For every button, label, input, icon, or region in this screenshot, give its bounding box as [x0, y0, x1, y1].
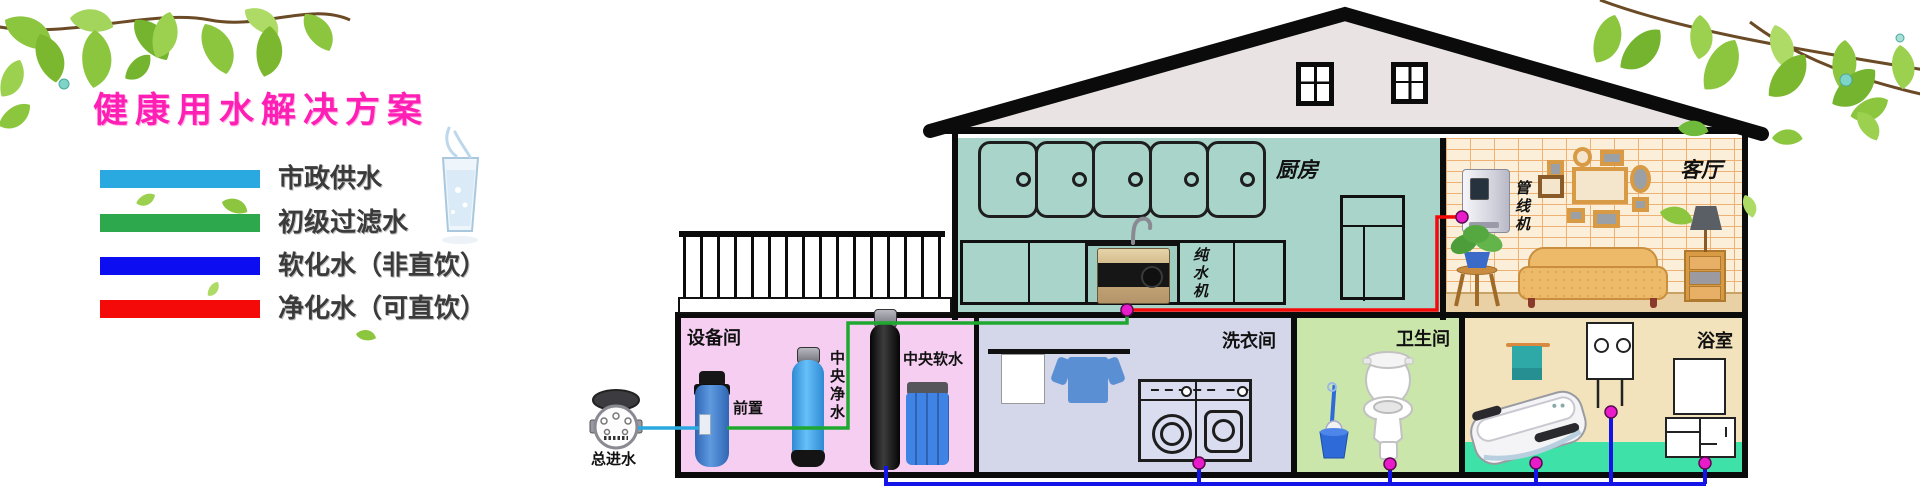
kitchen-cabinet-door: [1092, 141, 1152, 218]
cabinet-knob: [1128, 172, 1143, 187]
dispenser-screen: [1470, 178, 1489, 200]
photo-frame: [1538, 175, 1564, 198]
kitchen-label: 厨房: [1276, 154, 1318, 184]
photo-frame: [1593, 210, 1620, 228]
fridge: [1340, 195, 1405, 300]
drawer: [1689, 286, 1721, 300]
prefilter-label: 前置: [733, 397, 763, 418]
hanging-cloth: [1001, 354, 1045, 404]
water-heater: [1586, 322, 1634, 380]
machine-lens: [1141, 266, 1163, 288]
legend-label-purified: 净化水（可直饮）: [278, 288, 486, 325]
washer-knob: [1237, 386, 1248, 397]
vanity-handle: [1725, 427, 1727, 437]
water-glass: [442, 128, 478, 244]
pure-water-machine: [1097, 248, 1170, 304]
cabinet-knob: [1184, 172, 1199, 187]
central-purifier-label: 中央净水: [826, 350, 847, 412]
lamp-pole: [1704, 230, 1707, 252]
legend-swatch-purified: [100, 300, 260, 318]
washer-door-inner: [1160, 422, 1184, 446]
wall-bottom: [675, 472, 1748, 478]
bath-towel: [1512, 346, 1542, 380]
living-label: 客厅: [1680, 154, 1722, 184]
meter-label: 总进水: [591, 448, 636, 469]
cabinet-knob: [1072, 172, 1087, 187]
vanity-divider: [1699, 419, 1701, 456]
legend-swatch-filtered: [100, 214, 260, 232]
central-softener-label: 中央软水: [903, 348, 963, 369]
pipeline-machine: [1462, 169, 1510, 233]
washer-dryer: [1138, 379, 1252, 462]
central-purifier-unit: [792, 360, 824, 456]
sofa: [1518, 266, 1668, 300]
wall-equip-laundry: [974, 318, 979, 472]
terrace-fence-bars: [683, 237, 945, 297]
photo-frame: [1630, 165, 1651, 193]
prefilter-sticker-label: [699, 414, 711, 435]
drawer: [1689, 271, 1721, 285]
machine-band: [1098, 263, 1169, 287]
counter-divider: [1233, 240, 1235, 305]
legend-swatch-softened: [100, 257, 260, 275]
sofa-leg: [1528, 298, 1535, 308]
side-table: [1684, 250, 1726, 302]
photo-frame: [1632, 197, 1649, 212]
wall-right: [1742, 131, 1748, 478]
legend-label-filtered: 初级过滤水: [278, 202, 408, 239]
pipeline-machine-label: 管线机: [1512, 180, 1533, 228]
vanity-line: [1699, 443, 1717, 445]
cabinet-knob: [1016, 172, 1031, 187]
counter-divider: [1028, 240, 1030, 305]
dispenser-tray: [1469, 222, 1499, 228]
legend-swatch-municipal: [100, 170, 260, 188]
wall-laundry-toilet: [1291, 318, 1297, 472]
fridge-divider: [1343, 225, 1402, 227]
kitchen-cabinet-door: [1206, 141, 1266, 218]
heater-dial: [1594, 338, 1609, 353]
cabinet-knob: [1240, 172, 1255, 187]
equipment-label: 设备间: [687, 324, 741, 350]
wall-lower-left: [675, 312, 681, 478]
washer-divider: [1195, 382, 1197, 459]
toilet-label: 卫生间: [1396, 325, 1450, 351]
central-softener-tank: [870, 324, 900, 470]
heater-dial: [1616, 338, 1631, 353]
legend-label-softened: 软化水（非直饮）: [278, 245, 486, 282]
bath-mirror: [1673, 358, 1726, 415]
bath-label: 浴室: [1697, 327, 1733, 353]
brine-tank: [906, 393, 949, 465]
photo-frame: [1600, 150, 1624, 166]
water-solution-banner: 健康用水解决方案 市政供水 初级过滤水 软化水（非直饮） 净化水（可直饮）: [0, 0, 1920, 500]
laundry-label: 洗衣间: [1222, 327, 1276, 353]
roof-band: [930, 14, 1762, 134]
photo-frame: [1573, 147, 1592, 167]
attic-window-right: [1391, 62, 1428, 104]
water-meter: [590, 390, 642, 448]
washer-knob: [1181, 386, 1192, 397]
page-title: 健康用水解决方案: [93, 82, 429, 133]
attic-window-left: [1296, 62, 1334, 106]
dryer-door-inner: [1212, 419, 1235, 442]
sofa-leg: [1650, 298, 1657, 308]
attic-gable: [935, 18, 1755, 130]
photo-frame: [1567, 208, 1585, 223]
wall-kitchen-left: [952, 133, 958, 320]
pure-water-machine-label: 纯水机: [1190, 247, 1211, 305]
drawer: [1689, 256, 1721, 270]
legend-label-municipal: 市政供水: [278, 158, 382, 195]
attic-base-line: [935, 127, 1757, 134]
vanity-line: [1667, 431, 1699, 433]
photo-frame: [1572, 167, 1628, 204]
wall-kitchen-living: [1440, 138, 1446, 320]
wall-toilet-bath: [1459, 318, 1465, 472]
bath-vanity: [1665, 417, 1736, 458]
fridge-handle: [1363, 227, 1365, 301]
central-purifier-base: [791, 450, 825, 467]
terrace-ledge: [678, 297, 952, 314]
kitchen-cabinet-door: [1149, 141, 1209, 218]
